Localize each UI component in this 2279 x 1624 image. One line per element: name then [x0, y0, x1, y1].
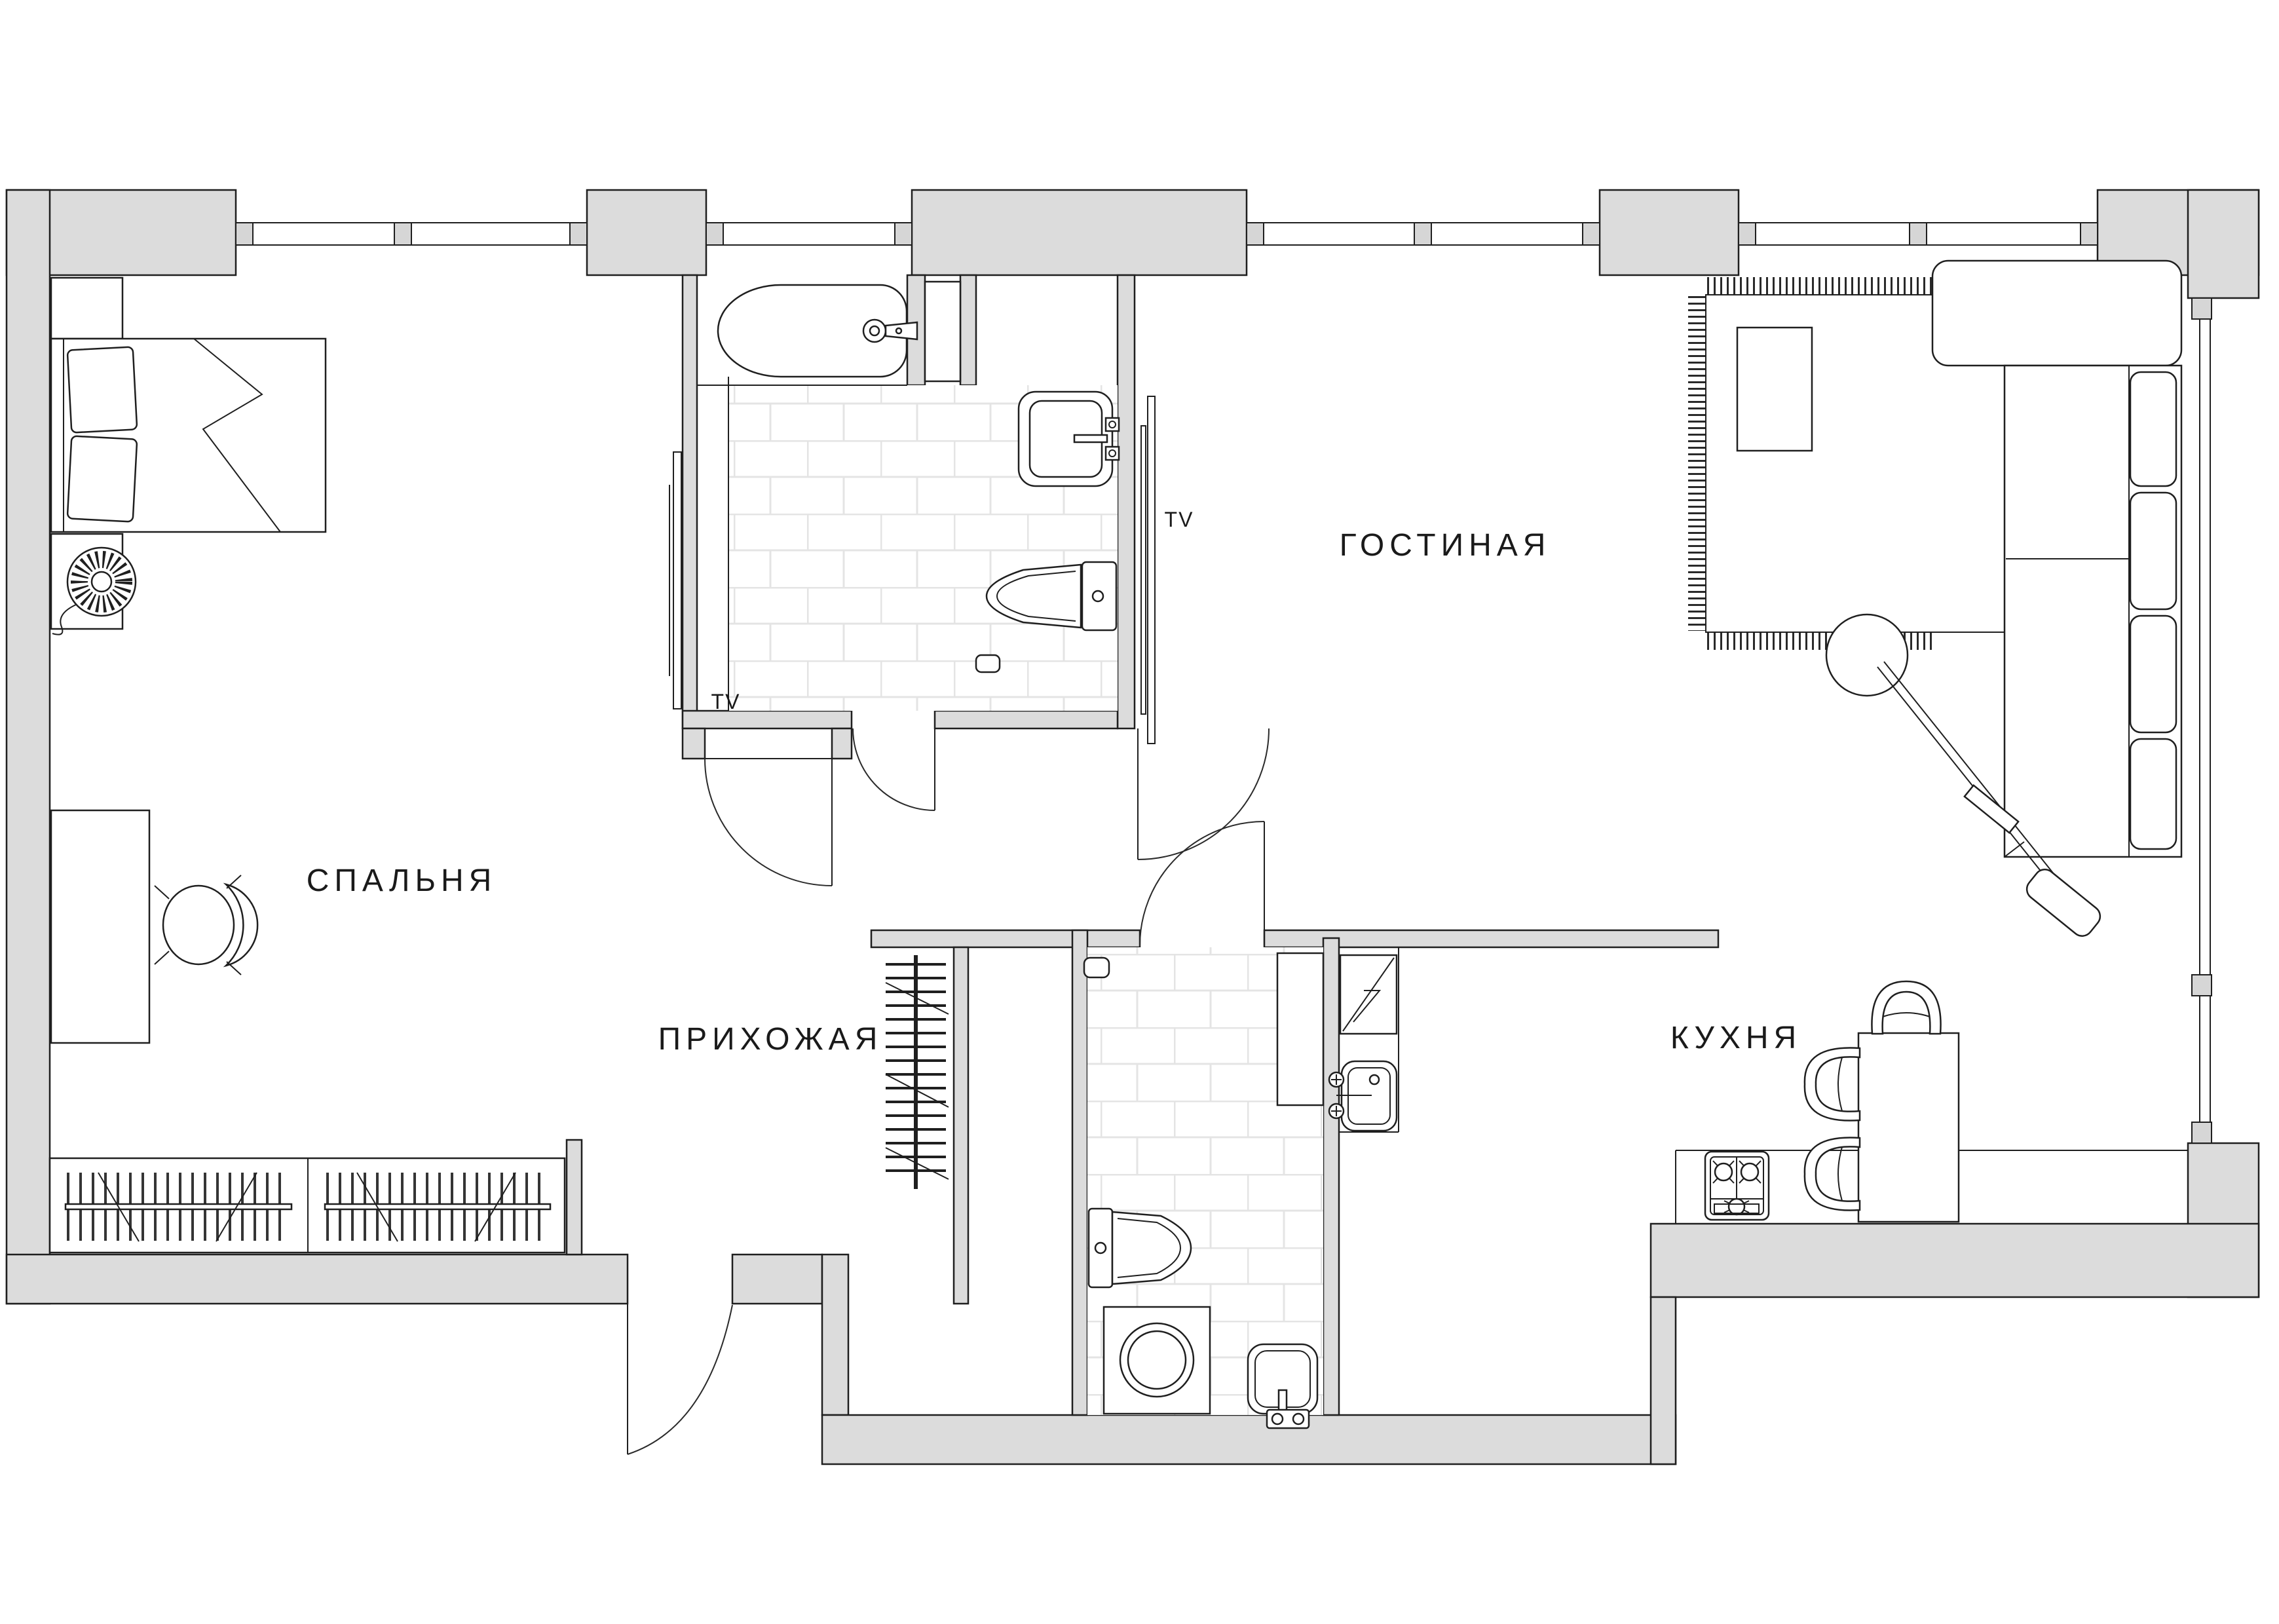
sofa-icon [1932, 261, 2181, 857]
dining-chair-icon [1805, 1048, 1860, 1120]
wall-coatrack [954, 947, 968, 1304]
wall-right-top [2188, 190, 2259, 298]
floor-drain-icon [976, 655, 1000, 672]
wall-bath2-right [1323, 938, 1339, 1415]
wall-bottom-bedroom [7, 1255, 628, 1304]
wall-bath1-bottom-left [683, 711, 852, 728]
dining-table-icon [1858, 1033, 1959, 1222]
window-icon [1739, 223, 2098, 245]
sofa-cushion-icon [2130, 739, 2176, 849]
door-swing-icon [1140, 821, 1264, 946]
chair-icon [155, 875, 257, 975]
sofa-cushion-icon [2130, 616, 2176, 732]
bedroom [50, 278, 681, 1253]
floor-drain-icon [1084, 958, 1109, 977]
floor-plan-stage: СПАЛЬНЯ ПРИХОЖАЯ ГОСТИНАЯ КУХНЯ TV TV [0, 0, 2279, 1624]
dining-chair-icon [1805, 1137, 1860, 1210]
room-label-bedroom: СПАЛЬНЯ [307, 863, 497, 898]
tv-label-bedroom: TV [711, 690, 741, 713]
wall-bottom-hall [732, 1255, 822, 1304]
wall-left [7, 190, 50, 1304]
bed-icon [51, 339, 326, 532]
wall-top-3 [912, 190, 1247, 275]
washing-machine-icon [1104, 1307, 1210, 1414]
cabinet-icon [1277, 953, 1323, 1105]
window-icon [2192, 298, 2212, 1143]
wall-bath1-right [1118, 275, 1135, 728]
door-swing-icon [628, 1304, 732, 1454]
desk-icon [51, 810, 149, 1043]
coffee-table-icon [1737, 328, 1812, 451]
wall-bottom-low [822, 1415, 1676, 1464]
wall-bedroom-door-jamb-left [683, 728, 705, 759]
coat-rack-icon [886, 955, 949, 1189]
door-swing-icon [853, 728, 935, 810]
nightstand-icon [51, 278, 122, 339]
wall-top-2 [587, 190, 706, 275]
cabinet-icon [925, 282, 960, 381]
hallway [886, 955, 949, 1189]
wall-bottom-kitchen [1651, 1224, 2259, 1297]
wall-bedroom-stub [567, 1140, 582, 1255]
wardrobe-icon [50, 1158, 565, 1253]
window-icon [1247, 223, 1600, 245]
wall-tub-stub-right [960, 275, 976, 385]
wall-hall-band-left [871, 930, 1140, 947]
wall-bedroom-door-jamb-right [832, 728, 852, 759]
door-swing-icon [697, 759, 832, 886]
tv-panel-icon [669, 452, 681, 709]
tv-panel-icon [1141, 396, 1155, 744]
wall-bath1-bottom-right [935, 711, 1118, 728]
room-label-hallway: ПРИХОЖАЯ [658, 1022, 883, 1057]
bathtub-icon [718, 285, 917, 377]
stove-icon [1705, 1152, 1769, 1220]
fridge-icon [1340, 955, 1397, 1034]
pillow-icon [67, 347, 137, 432]
wall-bath1-left [683, 275, 697, 728]
floor-plan-svg: СПАЛЬНЯ ПРИХОЖАЯ ГОСТИНАЯ КУХНЯ TV TV [0, 0, 2279, 1624]
door-swing-icon [1138, 728, 1269, 859]
living-room [1141, 261, 2181, 940]
kitchen [1329, 947, 2188, 1224]
pillow-icon [67, 436, 137, 521]
wall-top-4 [1600, 190, 1739, 275]
sofa-cushion-icon [2130, 372, 2176, 486]
dining-chair-icon [1872, 981, 1940, 1034]
wall-bath2-left [1072, 930, 1087, 1415]
room-label-kitchen: КУХНЯ [1670, 1021, 1801, 1055]
wall-step-entry [822, 1255, 848, 1415]
tv-label-living: TV [1165, 508, 1194, 531]
window-icon [236, 223, 587, 245]
sofa-cushion-icon [2130, 493, 2176, 609]
room-label-living: ГОСТИНАЯ [1340, 528, 1551, 563]
sink-icon [1019, 392, 1119, 486]
wall-step-kitchen [1651, 1297, 1676, 1464]
window-icon [706, 223, 912, 245]
